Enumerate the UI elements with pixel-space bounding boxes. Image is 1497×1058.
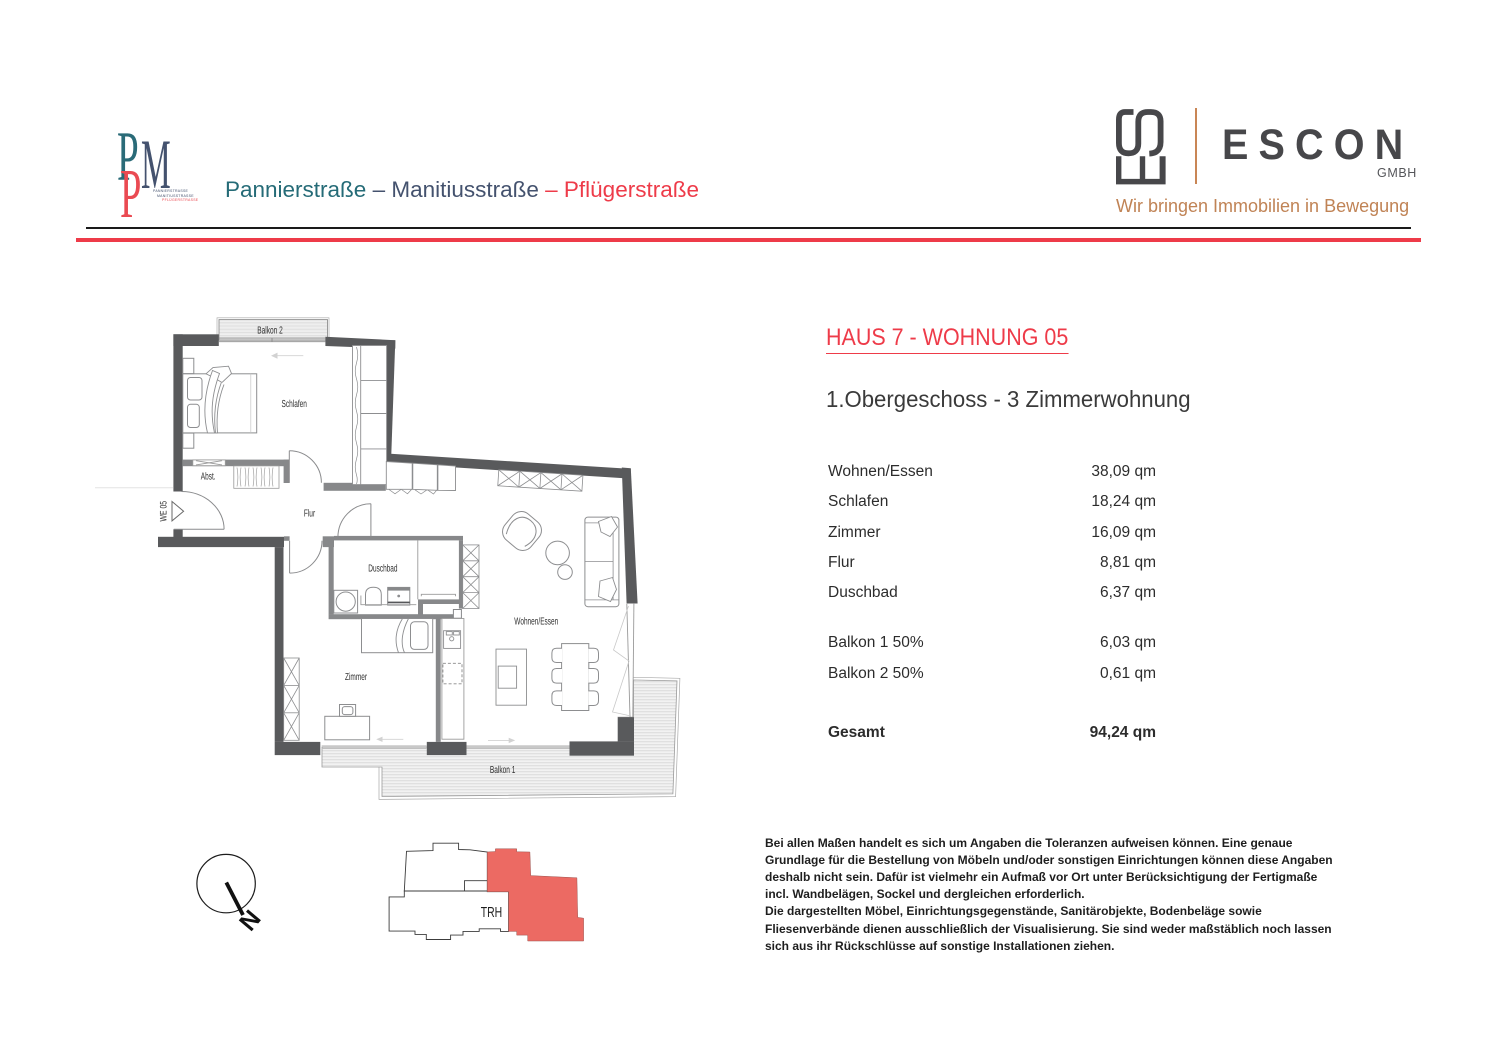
svg-text:WE 05: WE 05 (158, 501, 169, 522)
svg-text:TRH: TRH (481, 905, 503, 921)
svg-text:Wohnen/Essen: Wohnen/Essen (514, 617, 558, 628)
svg-text:Balkon 2: Balkon 2 (257, 326, 283, 337)
svg-text:Flur: Flur (304, 508, 316, 519)
svg-text:Abst.: Abst. (201, 472, 216, 483)
svg-text:Duschbad: Duschbad (368, 563, 397, 574)
svg-text:Zimmer: Zimmer (345, 672, 367, 683)
svg-text:Schlafen: Schlafen (282, 399, 307, 410)
svg-text:Balkon 1: Balkon 1 (490, 765, 516, 776)
